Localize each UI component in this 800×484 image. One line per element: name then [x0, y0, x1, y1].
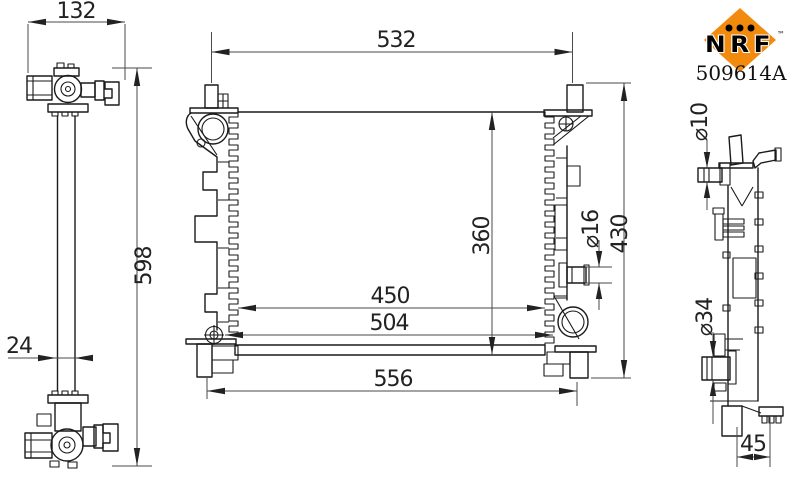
- dim-556-label: 556: [374, 367, 413, 392]
- dim-360: 360: [470, 112, 495, 355]
- radiator-drawing: 132 598 24 532 360 430 ⌀16: [0, 0, 800, 484]
- dim-132-label: 132: [57, 0, 96, 24]
- left-view-bottom-fitting: [25, 391, 118, 468]
- nrf-dot-icon: [737, 25, 744, 32]
- core-bottom-band: [235, 345, 545, 355]
- left-tank: [186, 85, 238, 377]
- left-side-view: [25, 63, 119, 468]
- dim-598-label: 598: [132, 247, 157, 286]
- dim-phi34-label: ⌀34: [693, 298, 718, 336]
- part-number: 509614A: [696, 61, 787, 85]
- dim-phi34: ⌀34: [693, 298, 718, 424]
- dim-598: 598: [112, 68, 157, 466]
- dim-450: 450: [238, 284, 545, 311]
- core-serration-left: [229, 112, 238, 334]
- dim-45-label: 45: [740, 432, 766, 457]
- dim-504-label: 504: [370, 311, 409, 336]
- dim-556: 556: [207, 367, 577, 406]
- trademark-symbol: ™: [777, 30, 785, 39]
- dim-504: 504: [225, 311, 553, 338]
- dim-430-label: 430: [608, 215, 633, 254]
- dim-phi10-label: ⌀10: [688, 103, 713, 141]
- dim-24-label: 24: [6, 334, 32, 359]
- nrf-dot-icon: [726, 25, 733, 32]
- core-serration-right: [545, 112, 554, 345]
- nrf-wordmark: NRF: [705, 33, 775, 58]
- dim-24: 24: [6, 334, 93, 361]
- left-view-core: [58, 116, 76, 391]
- dim-450-label: 450: [371, 284, 410, 309]
- nrf-dot-icon: [748, 25, 755, 32]
- technical-drawing-page: 132 598 24 532 360 430 ⌀16: [0, 0, 800, 484]
- left-view-top-fitting: [27, 63, 119, 116]
- dim-532: 532: [212, 28, 573, 83]
- dim-532-label: 532: [377, 28, 416, 53]
- nrf-logo: NRF ™ 509614A: [696, 8, 787, 85]
- dim-360-label: 360: [470, 217, 495, 256]
- dim-phi16-label: ⌀16: [579, 210, 604, 248]
- right-side-view: [698, 135, 783, 436]
- dim-phi10: ⌀10: [688, 103, 713, 210]
